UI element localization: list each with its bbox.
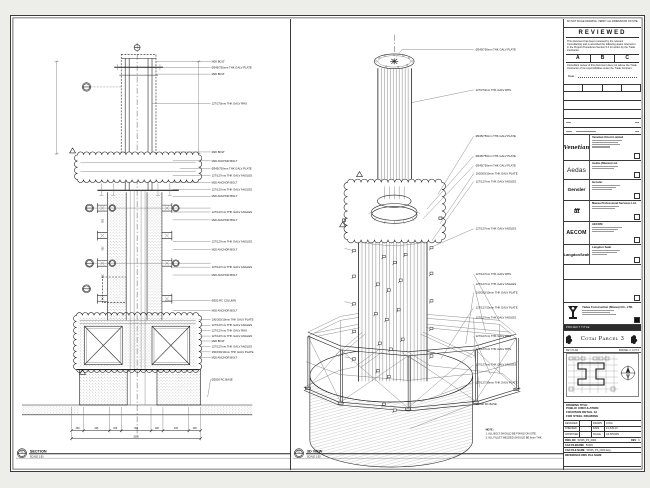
title-block: DO NOT SCALE DRAWING. VERIFY ALL DIMENSI… [564, 19, 641, 470]
annotation-label: 127/127mm THK GALV ANGLES [212, 174, 253, 178]
annotation-label: 127/127mm THK GALV ANGLES [212, 240, 253, 244]
dim-total: 2050 [133, 435, 139, 438]
annotation-label: M20 BOLT [212, 72, 225, 76]
status-checkbox [634, 193, 640, 199]
revision-row [564, 128, 641, 135]
drawing-sheet-screenshot: { "sheet": { "left_view": { "number": "0… [0, 0, 650, 488]
company-row-aedas: Aedas Aedas (Macau) Ltd. [564, 161, 641, 180]
annotation-label: 150/150/10mm THK GALV PLATE [212, 350, 254, 354]
annotation-label: 100/200/10mm THK GALV PLATE [212, 317, 254, 321]
annotation-label: 127/127mm THK GALV ANGLES [476, 179, 517, 183]
company-name: Aedas (Macau) Ltd. [592, 162, 639, 165]
revision-row [564, 92, 641, 101]
annotation-label: 127/127/10mm THK GALV PLATE [476, 380, 518, 384]
annotation-label: 127/127mm THK GALV ANGLES [212, 210, 253, 214]
gensler-logo: Gensler [564, 180, 590, 200]
detail-bubble-icon [82, 83, 91, 91]
company-row-meinhardt: ttt Macau Professional Services Ltd. [564, 201, 641, 222]
annotation-label: 127/127mm THK GALV RHS [212, 329, 248, 333]
company-name: Langdon Seah [592, 246, 639, 249]
company-row-gensler: Gensler Gensler [564, 180, 641, 201]
company-name: Macau Professional Services Ltd. [592, 202, 639, 205]
crest-icon [631, 334, 639, 345]
annotation-label: 127/127mm THK GALV ANGLES [476, 227, 517, 231]
annotation-label: M20 ANCHOR BOLT [212, 247, 238, 251]
address-text-lines [592, 206, 639, 209]
dim-label: 445 [94, 427, 99, 430]
annotation-label: 100/200/10mm THK GALV PLATE [476, 291, 518, 295]
aecom-logo: AECOM [564, 222, 590, 244]
view-number: 01 [21, 450, 24, 453]
view-number: 02 [298, 450, 301, 453]
note-line: 2. ALL FILLET WELDED SHOULD BE 6mm THK. [486, 436, 543, 440]
drawing-fields-table: DESIGNED DRAWN LUNG CHECKED - DATE 14-JU… [564, 420, 641, 438]
empty-row [564, 265, 641, 280]
annotation-label: Ø300 RC COLUMN [212, 299, 236, 303]
annotation-label: Ø345/750mm THK GALV PLATE [476, 48, 516, 52]
annotation-label: Ø345/750mm THK GALV PLATE [476, 164, 516, 168]
view-scale: SCALE 1:50 [30, 456, 44, 459]
key-plan-map [564, 353, 641, 397]
note-line: 1. ALL BOLT SHOULD BE FIXING ON SITE. [486, 432, 537, 436]
contractor-block: Yadea Construction (Macau) CO., LTD. [564, 303, 641, 325]
drawing-title-line: FOR STEEL DRAWING [564, 415, 641, 419]
annotation-label: 127/127mm THK GALV RHS [476, 272, 512, 276]
annotation-label: M20 BOLT [212, 150, 225, 154]
annotation-label: Ø345/750mm THK GALV PLATE [476, 154, 516, 158]
stamp-date-row: Date : [566, 72, 639, 79]
cad-value: 51545 [586, 444, 593, 447]
annotation-label: 127/127mm THK GALV ANGLES [476, 363, 517, 367]
cad-label: CAD FILENAME [565, 444, 584, 447]
status-checkbox-filled [634, 317, 640, 323]
project-title-row: Cotai Parcel 3 [564, 331, 641, 348]
iso-view-panel: 02 3D VIEW SCALE 1:50 Ø345/750mm THK GAL… [291, 19, 564, 470]
company-row-aecom: AECOM AECOM [564, 222, 641, 245]
sheet-top-note: DO NOT SCALE DRAWING. VERIFY ALL DIMENSI… [564, 19, 641, 28]
annotation-label: Ø2000 RC BASE [476, 402, 497, 406]
note-title: NOTE: [486, 428, 494, 432]
field-label: SCALE [592, 432, 605, 438]
dim-label: 445 [174, 427, 179, 430]
address-text-lines [592, 185, 639, 190]
address-text-lines [592, 227, 639, 232]
revision-row [564, 110, 641, 119]
langdonseah-logo: LangdonSeah [564, 245, 590, 264]
status-checkbox [634, 237, 640, 243]
field-label: APPROVED [564, 432, 580, 438]
view-title: 3D VIEW [307, 449, 323, 453]
annotation-label: 127/273mm THK GALV RHS [212, 102, 248, 106]
status-checkbox [634, 153, 640, 159]
annotation-label: M20 BOLT [212, 59, 225, 63]
status-checkbox [634, 214, 640, 220]
annotation-label: 127/127mm THK GALV ANGLES [212, 344, 253, 348]
annotation-label: M20 ANCHOR BOLT [212, 180, 238, 184]
annotation-label: 127/127mm THK GALV ANGLES [212, 187, 253, 191]
annotation-label: M20 BOLT [212, 339, 225, 343]
address-text-lines [592, 166, 639, 169]
key-plan-label: KEY PLAN [566, 349, 578, 352]
view-scale: SCALE 1:50 [307, 456, 321, 459]
project-title: Cotai Parcel 3 [581, 336, 625, 342]
dim-label: 200 [193, 427, 198, 430]
review-grade-row: A B C [566, 54, 639, 63]
compass-icon [621, 366, 636, 381]
venetian-logo: Venetian [564, 135, 590, 160]
revision-row [564, 101, 641, 110]
reviewed-paragraph: Consultant review of this document does … [566, 63, 639, 72]
address-text-lines [592, 140, 639, 147]
crest-icon [566, 334, 574, 345]
dim-label: 500 [102, 218, 104, 223]
empty-row [564, 280, 641, 303]
status-checkbox [634, 172, 640, 178]
dim-label: 200 [155, 427, 160, 430]
grade-a-cell: A [566, 55, 591, 62]
key-plan-parcel: PARCEL 3, LOT 2 [619, 349, 639, 352]
annotation-label: 127/273mm THK GALV RHS [476, 88, 512, 92]
annotation-label: 127/127mm THK GALV ANGLES [476, 282, 517, 286]
annotation-label: M20 ANCHOR BOLT [212, 159, 238, 163]
date-fill-line [578, 73, 637, 78]
annotation-label: Ø345/750mm THK GALV PLATE [476, 134, 516, 138]
dim-label: 200 [76, 427, 81, 430]
company-row-venetian: Venetian Venetian Orient Limited [564, 135, 641, 161]
status-checkbox [634, 295, 640, 301]
contractor-name: Yadea Construction (Macau) CO., LTD. [582, 306, 637, 309]
annotation-label: M20 ANCHOR BOLT [212, 194, 238, 198]
dim-label: 450 [134, 427, 139, 430]
rev-label: REV [631, 439, 636, 442]
reviewed-stamp: REVIEWED This document has been reviewed… [564, 28, 641, 85]
revision-row [564, 119, 641, 128]
annotation-label: 127/127/10mm THK GALV PLATE [476, 306, 518, 310]
dwg-no-value: 51545_PS_0000 [578, 439, 597, 442]
annotation-label: 127/127mm THK GALV ANGLES [212, 265, 253, 269]
annotation-label: Ø2000 RC BASE [212, 377, 233, 381]
status-checkbox [634, 257, 640, 263]
detail-bubble-icon [83, 204, 180, 293]
annotation-label: 127/127mm THK GALV ANGLES [212, 323, 253, 327]
section-view-drawing: 01 SECTION SCALE 1:50 200 445 200 450 20… [14, 19, 291, 470]
cad-file-label: CAD FILE NAME [565, 449, 585, 452]
annotation-label: 100/200/10mm THK GALV PLATE [476, 172, 518, 176]
section-view-panel: 01 SECTION SCALE 1:50 200 445 200 450 20… [14, 19, 291, 470]
revision-table [564, 85, 641, 135]
annotation-label: M20 ANCHOR BOLT [212, 218, 238, 222]
contractor-logo-icon [566, 304, 580, 321]
company-name: AECOM [592, 223, 639, 226]
field-value: AS SHOWN [605, 432, 641, 438]
annotation-label: M20 ANCHOR BOLT [212, 273, 238, 277]
dim-label: 500 [102, 246, 104, 251]
annotation-label: Ø345/750mm THK GALV PLATE [212, 167, 252, 171]
view-title: SECTION [30, 449, 47, 453]
reviewed-title: REVIEWED [566, 29, 639, 38]
annotation-label: 127/127mm THK GALV RHS [476, 334, 512, 338]
address-text-lines [582, 310, 637, 315]
rev-value: C [638, 439, 640, 442]
dwg-no-label: DWG NO [565, 439, 576, 442]
field-value: - [580, 432, 592, 438]
grade-b-cell: B [591, 55, 616, 62]
annotation-label: M20 ANCHOR BOLT [212, 356, 238, 360]
dim-label: 500 [102, 273, 104, 278]
address-text-lines [592, 250, 639, 255]
aedas-logo: Aedas [564, 161, 590, 179]
cad-file-value: 51545_PS_0000.dwg [587, 449, 611, 452]
key-plan: KEY PLAN PARCEL 3, LOT 2 [564, 348, 641, 403]
drawing-sheet: 01 SECTION SCALE 1:50 200 445 200 450 20… [10, 15, 645, 472]
reference-row: REFERENCE DWG FILE NAME [564, 453, 641, 457]
grade-c-cell: C [615, 55, 639, 62]
company-name: Venetian Orient Limited [592, 136, 639, 139]
drawing-info-block: DRAWING TITLE: PUBLIC CIRCULATION FOUNTA… [564, 403, 641, 467]
annotation-label: 127/127mm THK GALV ANGLES [212, 334, 253, 338]
date-label: Date : [568, 74, 576, 78]
annotation-label: Ø345/750mm THK GALV PLATE [212, 66, 252, 70]
meinhardt-logo: ttt [564, 201, 590, 221]
reviewed-paragraph: This document has been reviewed by the r… [566, 38, 639, 54]
iso-view-drawing: 02 3D VIEW SCALE 1:50 Ø345/750mm THK GAL… [291, 19, 564, 470]
company-name: Gensler [592, 181, 639, 184]
revision-header [564, 85, 641, 92]
dim-label: 200 [113, 427, 118, 430]
reference-label: REFERENCE DWG FILE NAME [565, 454, 601, 457]
annotation-label: 127/127mm THK GALV RHS [476, 347, 512, 351]
company-row-langdonseah: LangdonSeah Langdon Seah [564, 245, 641, 265]
annotation-label: M20 ANCHOR BOLT [212, 308, 238, 312]
annotation-label: 127/127mm THK GALV ANGLES [476, 315, 517, 319]
consultant-list: Venetian Venetian Orient Limited Aedas A… [564, 135, 641, 265]
